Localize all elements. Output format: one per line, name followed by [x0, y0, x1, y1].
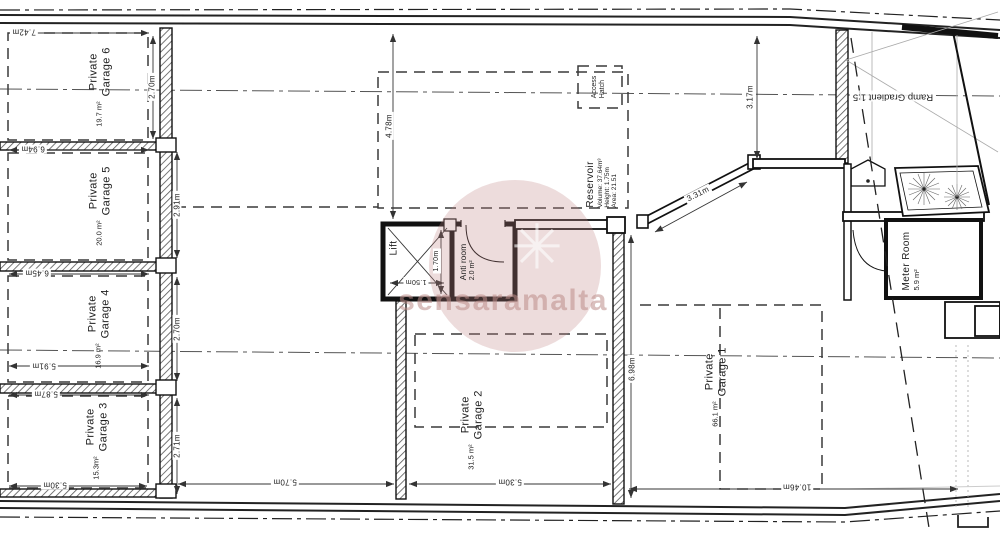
meter-room-door-arc: [853, 230, 886, 271]
dim-1-50: 1.50m: [404, 277, 429, 285]
garage3-name: PrivateGarage 3: [84, 402, 109, 451]
garage5-outline: [8, 153, 148, 260]
dim-6-45: 6.45m: [23, 268, 51, 277]
reservoir-label: Reservoir Volume: 37.64m³ Height: 1.75m …: [585, 158, 619, 207]
garage3-area: 15.3m²: [93, 456, 102, 479]
watermark-text: sensaramalta: [398, 284, 608, 318]
garage2-right-wall: [613, 232, 624, 504]
dim-4-78: 4.78m: [384, 112, 393, 140]
dim-5-30-g2: 5.30m: [496, 477, 524, 486]
dim-7-42: 7.42m: [10, 27, 38, 36]
garage1-area: 66.1 m²: [712, 401, 721, 426]
site-boundary-top: [0, 9, 1000, 38]
dim-1-70: 1.70m: [433, 249, 441, 274]
anti-room-label: Anti room 2.0 m²: [459, 244, 477, 280]
garage5-name: PrivateGarage 5: [87, 166, 112, 215]
garage4-area: 16.9 m²: [95, 343, 104, 368]
garage3-label: 15.3m² PrivateGarage 3: [84, 402, 109, 479]
dim-5-30-left: 5.30m: [41, 480, 69, 489]
watermark-logo-icon: ✳: [511, 211, 563, 284]
access-hatch-label: Access Hatch: [591, 76, 607, 99]
dim-2-70-g4: 2.70m: [172, 315, 181, 343]
dim-5-91: 5.91m: [30, 361, 58, 370]
garage2-name: PrivateGarage 2: [459, 390, 484, 439]
floor-plan: ✳ sensaramalta 19.7 m² PrivateGarage 6 2…: [0, 0, 1000, 550]
garage5-area: 20.0 m²: [96, 220, 105, 245]
lift-label: Lift: [388, 241, 400, 256]
site-boundary-bottom: [0, 494, 1000, 527]
dim-5-87: 5.87m: [32, 389, 60, 398]
garage4-name: PrivateGarage 4: [86, 289, 111, 338]
meter-room-label: Meter Room 5.9 m²: [901, 231, 921, 290]
garage6-outline: [8, 33, 148, 140]
garage5-label: 20.0 m² PrivateGarage 5: [87, 166, 112, 246]
dim-5-70: 5.70m: [271, 477, 299, 486]
garage1-outline: [640, 305, 822, 489]
ramp-gradient-label: Ramp Gradient 1:5: [851, 91, 935, 102]
garage1-name: PrivateGarage 1: [703, 347, 728, 396]
dim-6-98: 6.98m: [627, 355, 636, 383]
garage3-outline: [8, 396, 148, 488]
reservoir-outline: [175, 66, 628, 208]
garage2-label: 31.5 m² PrivateGarage 2: [459, 390, 484, 470]
dim-2-91: 2.91m: [172, 191, 181, 219]
dim-2-70-g6: 2.70m: [147, 73, 156, 101]
garage6-area: 19.7 m²: [96, 101, 105, 126]
garage2-area: 31.5 m²: [468, 444, 477, 469]
dim-3-17: 3.17m: [745, 83, 754, 111]
dim-2-71: 2.71m: [172, 432, 181, 460]
dim-10-46: 10.46m: [781, 482, 813, 491]
garage6-name: PrivateGarage 6: [87, 47, 112, 96]
garage1-label: 66.1 m² PrivateGarage 1: [703, 347, 728, 427]
garage4-label: 16.9 m² PrivateGarage 4: [86, 289, 111, 369]
planter: [895, 166, 989, 216]
garage2-left-wall: [396, 301, 406, 499]
garage6-label: 19.7 m² PrivateGarage 6: [87, 47, 112, 127]
dim-6-94: 6.94m: [19, 144, 47, 153]
